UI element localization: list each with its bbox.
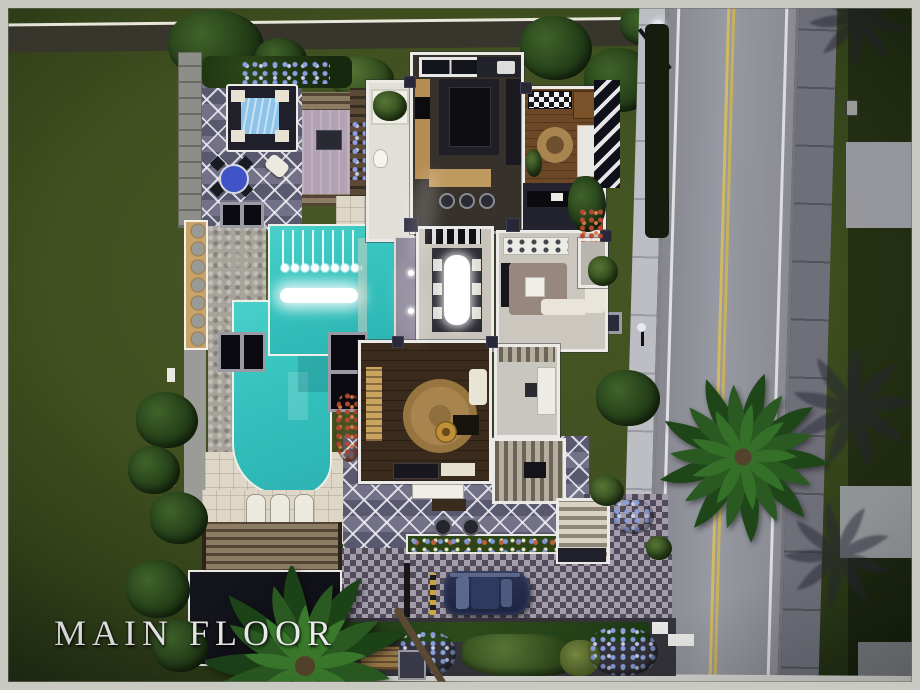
roof-vent [524,462,546,478]
dining-chair [472,259,481,271]
flower-strip [406,534,558,554]
counter-left [415,79,430,179]
stair-slats [425,229,481,244]
outdoor-chair [462,518,480,536]
mauve-deck [302,110,356,196]
dining-chair [472,307,481,319]
pergola-top-nw [302,92,356,112]
wall-cap [506,218,520,232]
wall-cap [520,82,532,94]
palm-tree [658,372,828,542]
planter-pair [220,202,264,228]
tree [136,392,198,448]
dining-chair [472,283,481,295]
bar-stool [479,193,495,209]
tree [126,560,190,618]
red-flowers [578,208,606,242]
hedge-flowers [240,60,330,84]
tree [596,370,660,426]
bar-stool [439,193,455,209]
dining-table [444,255,470,325]
tree [128,446,180,494]
car-roof [471,577,499,609]
hot-tub-water [241,98,279,134]
wall-cap [392,336,404,348]
hot-tub-seat [231,130,245,142]
counter-right [506,79,521,165]
outdoor-bench [412,484,464,499]
trash-can [846,100,858,116]
bar-stool [459,193,475,209]
floor-label: MAIN FLOOR [54,612,337,654]
kitchen-island [449,87,491,147]
stone-wall [178,52,202,228]
black-counter [527,191,573,207]
hot-tub-seat [275,130,289,142]
sink [497,61,515,74]
indoor-plant [526,149,542,177]
crossing-walk [846,142,920,228]
stove [415,97,430,119]
shrub [588,256,618,286]
gate-post [668,634,694,646]
slat-bench [366,367,382,441]
desk [537,367,556,415]
wall-cap [404,76,416,88]
bench [441,463,475,476]
garden-lamp-head [637,323,646,332]
pool-glow-light [280,288,358,303]
planter-pair [218,332,266,372]
patio-table [219,164,249,194]
tree [520,16,592,80]
blind-room-base [558,548,606,562]
flower-shrub [612,498,654,534]
indoor-plants [373,91,407,121]
hot-tub-seat [231,90,245,102]
outdoor-table [432,499,466,511]
garden-lamp-pole [641,330,644,346]
dining-chair [433,307,442,319]
round-rug [537,127,573,163]
toilet [373,149,388,168]
checker-shelf [528,91,572,109]
hot-tub [226,84,298,152]
dining-chair [433,259,442,271]
book [551,193,563,201]
gold-spiral-chair [435,421,457,443]
sofa [469,369,487,405]
screenshot-root: MAIN FLOOR [0,0,920,690]
car-windshield [456,577,469,610]
pergola [202,522,342,572]
fireplace [393,463,439,479]
striped-bollard [430,573,436,615]
bar-counter [429,169,491,187]
kitchenette [503,237,569,255]
deck-table [316,130,342,150]
hydrangea [588,626,658,676]
tree [150,492,208,544]
dining-chair [433,283,442,295]
sphere-decor-wall [184,220,208,350]
sawtooth-stairs [594,80,620,188]
hot-tub-seat [275,90,289,102]
hedge-east [645,24,669,238]
pool-divider [358,238,367,334]
sofa [541,299,587,315]
outdoor-chair [434,518,452,536]
car-highlight [450,573,520,577]
fence-post [167,368,175,382]
coffee-table [525,277,545,297]
car-rear-window [501,579,512,607]
room-study [494,344,560,438]
palm-shadow [803,0,913,73]
wall-cap [486,336,498,348]
car [444,571,530,615]
window-blind [499,347,555,362]
fountain-splash [280,262,362,274]
gate-post [652,622,668,634]
room-living [358,340,492,484]
chair [525,383,537,397]
